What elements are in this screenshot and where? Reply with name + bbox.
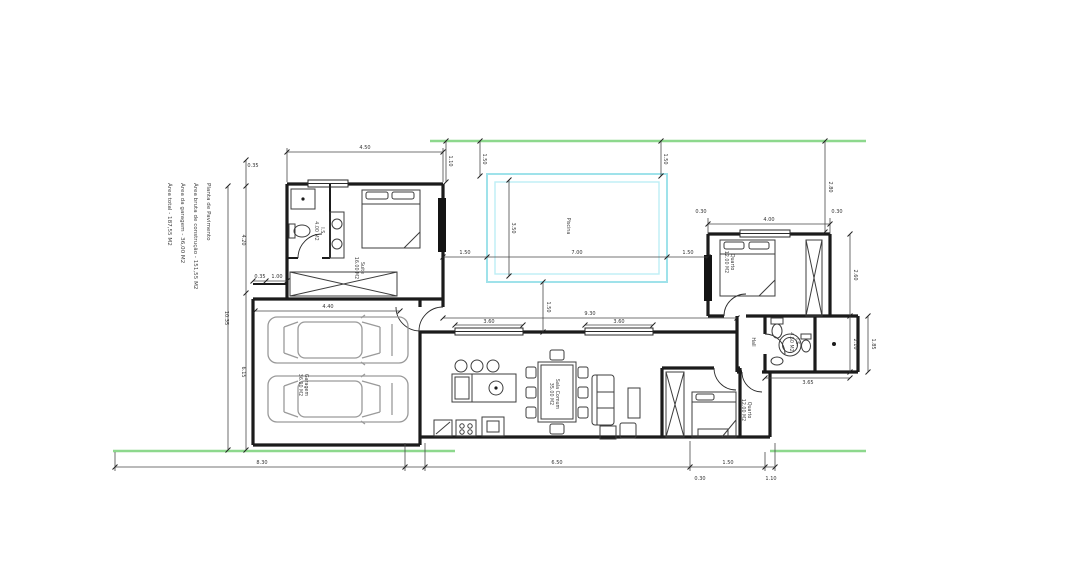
dim-pool-bottom-gap: 1.50 [545, 301, 551, 312]
svg-text:Quarto: Quarto [746, 402, 752, 419]
dim-left-upper: 4.20 [240, 234, 246, 245]
svg-text:4.00 M2: 4.00 M2 [313, 221, 319, 240]
dim-left-total: 10.35 [223, 311, 229, 325]
dim-pool-top-right: 1.50 [662, 153, 668, 164]
dim-window-b: 3.60 [613, 319, 624, 325]
car-1 [268, 315, 408, 365]
svg-text:16.00 M2: 16.00 M2 [353, 257, 359, 279]
toilet-bowl [294, 225, 310, 237]
wardrobe-bedroom2 [806, 240, 822, 316]
dim-pool-height: 3.50 [510, 222, 516, 233]
label-suite-bath: I.S.4.00 M2 [313, 221, 325, 240]
dim-bed2-offset-b: 0.30 [831, 209, 842, 215]
floor-plan-page: Planta de Pavimento Área bruta de constr… [0, 0, 1080, 566]
dim-left-lower: 6.15 [240, 366, 246, 377]
furniture [289, 189, 836, 439]
dim-bed2-width: 4.00 [763, 217, 774, 223]
dim-pool-top-left: 1.50 [481, 153, 487, 164]
door-bedroom2 [724, 294, 746, 316]
dim-bottom-e: 1.10 [765, 476, 776, 482]
svg-text:Hall: Hall [750, 337, 756, 346]
dim-pool-offset-left: 1.10 [447, 155, 453, 166]
closet-dot [832, 342, 836, 346]
svg-text:35.00 M2: 35.00 M2 [548, 383, 554, 405]
dim-bottom-c: 1.50 [722, 460, 733, 466]
dim-suite-width: 4.50 [359, 145, 370, 151]
label-hall: Hall [750, 337, 756, 346]
dim-pool-left-gap: 1.50 [459, 250, 470, 256]
sofa [592, 375, 614, 425]
svg-text:I.S.: I.S. [319, 227, 325, 235]
dimension-labels: 4.50 4.40 9.30 3.60 3.60 1.50 7.00 1.50 … [247, 145, 842, 482]
label-garage: Garagem36.00 M2 [297, 374, 309, 397]
door-bedroom3 [714, 368, 736, 390]
dim-garage-width: 4.40 [322, 304, 333, 310]
dim-right-top: 2.80 [827, 181, 833, 192]
dim-window-a: 3.60 [483, 319, 494, 325]
svg-text:Garagem: Garagem [303, 374, 309, 397]
car-2 [268, 374, 408, 424]
svg-text:Sala Comum: Sala Comum [554, 379, 560, 410]
svg-text:12.00 M2: 12.00 M2 [723, 251, 729, 273]
dim-bottom-d: 0.30 [694, 476, 705, 482]
wardrobe-suite [290, 272, 397, 296]
bed-bedroom3 [692, 392, 736, 437]
dimension-ticks [113, 139, 871, 470]
label-living: Sala Comum35.00 M2 [548, 379, 560, 410]
bed-suite [362, 190, 420, 248]
window-suite-side [438, 198, 446, 252]
dim-right-bed2: 2.60 [852, 269, 858, 280]
dim-bottom-b: 6.50 [551, 460, 562, 466]
svg-text:12.00 M2: 12.00 M2 [740, 399, 746, 421]
info-line-2: Área bruta de construção - 151,55 M2 [192, 183, 199, 289]
title-block: Planta de Pavimento Área bruta de constr… [166, 183, 211, 289]
dim-pool-right-gap: 1.50 [682, 250, 693, 256]
wardrobe-bedroom3 [666, 372, 684, 437]
dim-left-top-offset: 0.35 [247, 163, 258, 169]
kitchen-island [452, 360, 516, 402]
svg-text:36.00 M2: 36.00 M2 [297, 374, 303, 396]
dim-right-side: 1.85 [870, 338, 876, 349]
svg-text:Suite: Suite [359, 262, 365, 274]
svg-text:4.50 M2: 4.50 M2 [788, 332, 794, 351]
info-line-1: Planta de Pavimento [205, 183, 211, 241]
dim-pool-width: 7.00 [571, 250, 582, 256]
kitchen-appliances [434, 417, 504, 436]
dim-suite-step-a: 0.35 [254, 274, 265, 280]
info-line-3: Área da garagem - 36,00 M2 [179, 183, 186, 263]
tv-cabinet [628, 388, 640, 418]
dim-bed2-offset-a: 0.30 [695, 209, 706, 215]
door-suite-entry [419, 307, 443, 331]
window-bedroom2-side [704, 255, 712, 301]
dim-terrace-width: 9.30 [584, 311, 595, 317]
info-line-4: Área total - 187,55 M2 [166, 183, 173, 246]
dim-bath-width: 3.65 [802, 380, 813, 386]
svg-text:Piscina: Piscina [565, 218, 571, 235]
garage-cars [268, 315, 408, 424]
svg-text:Quarto: Quarto [729, 254, 735, 271]
label-suite: Suite16.00 M2 [353, 257, 365, 279]
vanity-basin-2 [332, 239, 342, 249]
label-bedroom3: Quarto12.00 M2 [740, 399, 752, 421]
door-hall-living [742, 372, 762, 392]
label-pool: Piscina [565, 218, 571, 235]
dim-bottom-a: 8.30 [256, 460, 267, 466]
svg-text:I.S.: I.S. [794, 338, 800, 346]
dim-suite-step-b: 1.00 [271, 274, 282, 280]
bath-counter-sink-dot [301, 197, 304, 200]
vanity-basin-1 [332, 219, 342, 229]
floor-plan-drawing: Planta de Pavimento Área bruta de constr… [0, 0, 1080, 566]
dim-right-bath: 2.10 [852, 338, 858, 349]
